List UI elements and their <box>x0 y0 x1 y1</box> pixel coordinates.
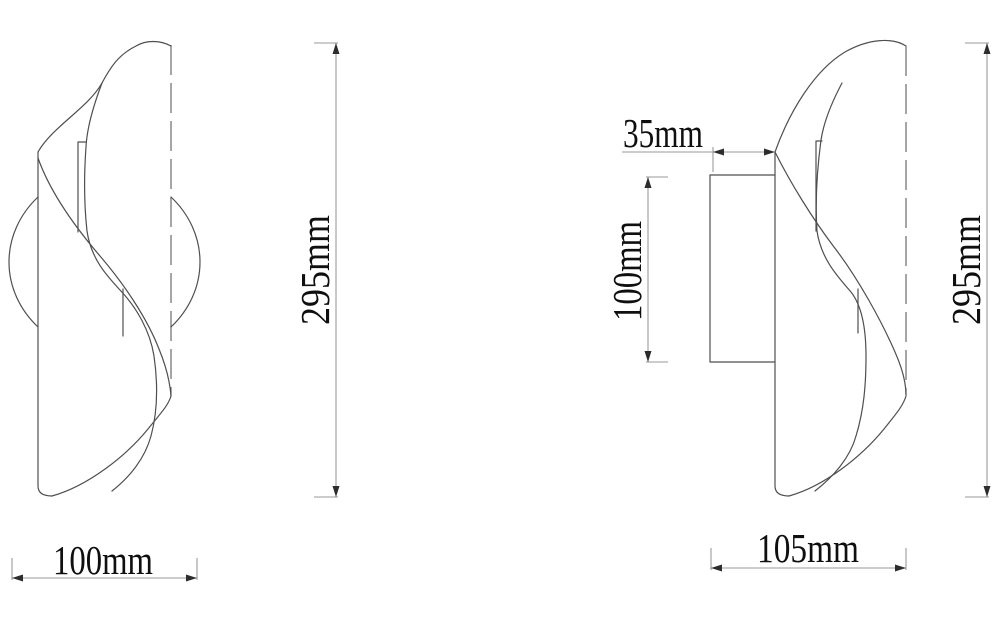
front-height-arrow-down-icon <box>333 486 340 497</box>
side-height-dimension-label: 295mm <box>943 215 989 325</box>
front-view-drawing <box>9 42 200 497</box>
front-top-outer-curve <box>38 42 171 153</box>
side-plate-height-arrow-up-icon <box>645 177 652 188</box>
front-inner-curve <box>85 83 157 491</box>
front-width-dimension: 100mm <box>12 537 197 583</box>
side-height-dimension: 295mm <box>943 43 991 497</box>
side-total-depth-arrow-right-icon <box>895 565 906 572</box>
front-width-dimension-label: 100mm <box>53 537 153 583</box>
side-bottom-sweep-curve <box>789 396 906 496</box>
side-inner-curve <box>815 83 866 491</box>
side-mount-depth-arrow-right-icon <box>764 149 775 156</box>
front-bottom-sweep-curve <box>52 396 171 496</box>
front-height-arrow-up-icon <box>333 43 340 54</box>
side-height-arrow-down-icon <box>984 486 991 497</box>
side-plate-height-dimension-label: 100mm <box>604 221 650 321</box>
side-top-outer-curve <box>775 40 906 152</box>
side-ribbon-curve <box>775 152 906 395</box>
front-ribbon-curve <box>38 158 171 396</box>
side-mounting-plate-rect <box>710 175 775 362</box>
side-mount-depth-dimension-label: 35mm <box>623 110 703 156</box>
front-canopy-arc-right <box>171 197 200 327</box>
side-view-drawing <box>710 40 906 496</box>
front-height-dimension-label: 295mm <box>292 215 338 325</box>
side-front-face-line <box>775 152 789 496</box>
side-plate-height-dimension: 100mm <box>604 177 668 362</box>
side-total-depth-dimension: 105mm <box>711 525 906 572</box>
front-width-arrow-right-icon <box>186 575 197 582</box>
side-total-depth-arrow-left-icon <box>711 565 722 572</box>
side-total-depth-dimension-label: 105mm <box>757 525 859 571</box>
front-height-dimension: 295mm <box>292 43 340 497</box>
side-height-arrow-up-icon <box>984 43 991 54</box>
side-mount-depth-arrow-left-icon <box>713 149 724 156</box>
front-width-arrow-left-icon <box>12 575 23 582</box>
side-plate-height-arrow-down-icon <box>645 351 652 362</box>
front-left-edge-line <box>38 152 52 496</box>
wall-lamp-dimension-drawing: 295mm 100mm 35mm 100mm 295mm 105mm <box>0 0 1000 625</box>
side-mount-depth-dimension: 35mm <box>622 110 775 172</box>
front-canopy-arc-left <box>9 197 38 327</box>
technical-drawing-canvas: 295mm 100mm 35mm 100mm 295mm 105mm <box>0 0 1000 625</box>
